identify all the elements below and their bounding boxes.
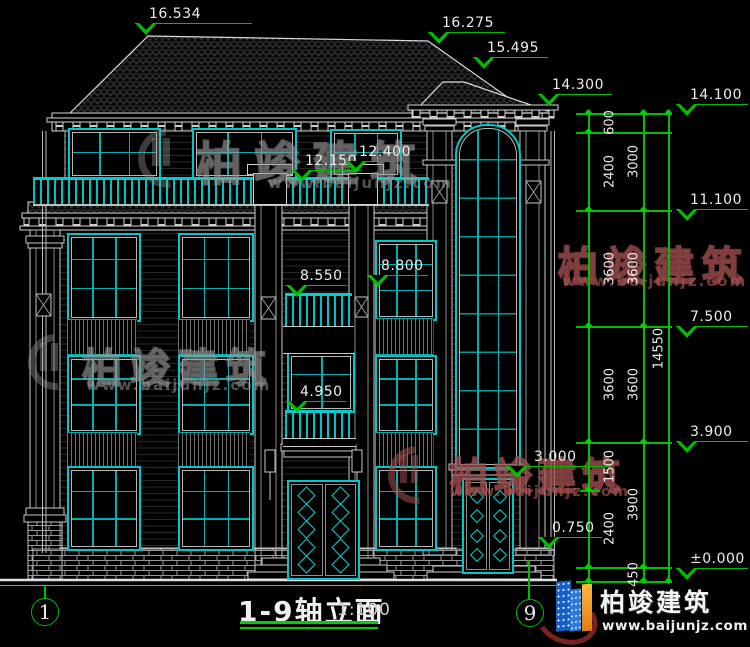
balcony2-slab [283, 438, 356, 447]
dim-2400: 2400 [603, 501, 618, 557]
watermark-url: www.baijunjz.com [562, 272, 747, 290]
elev-3.900: 3.900 [676, 424, 748, 442]
dim-3000: 3000 [627, 134, 642, 190]
dim-3600: 3600 [603, 241, 618, 297]
tower-arched-window [455, 124, 521, 469]
elev-7.500: 7.500 [676, 309, 748, 327]
window-3f-left2 [178, 233, 254, 322]
dim-2400: 2400 [603, 144, 618, 200]
elev-0.750: 0.750 [538, 520, 602, 538]
logo-building-icon [582, 584, 592, 632]
dim-3900: 3900 [627, 477, 642, 533]
balcony3-slab [283, 326, 354, 354]
elev-16.275: 16.275 [428, 15, 505, 33]
axis-bubble-1: 1 [31, 598, 59, 626]
dim-3600: 3600 [627, 241, 642, 297]
window-2f-right [375, 355, 437, 435]
dim-3600: 3600 [603, 357, 618, 413]
dim-chain-line-b [643, 111, 645, 582]
elev-4.950: 4.950 [286, 384, 346, 402]
elev-15.495: 15.495 [473, 40, 548, 58]
dim-chain-line-a [588, 111, 590, 582]
watermark-logo-icon [40, 343, 58, 371]
elev-14.300: 14.300 [538, 77, 612, 95]
logo-building-icon [556, 580, 571, 632]
spandrel-3f-right [375, 318, 433, 355]
elev-14.100: 14.100 [676, 87, 748, 105]
logo-building-icon [570, 588, 581, 631]
window-1f-left2 [178, 466, 254, 551]
cad-elevation-sheet: 16.534 16.275 15.495 14.300 14.100 12.15… [0, 0, 750, 647]
elev-8.800: 8.800 [367, 258, 428, 276]
elev-11.100: 11.100 [676, 192, 748, 210]
spandrel-2f-left1 [67, 432, 137, 467]
axis-leader-1 [44, 585, 46, 598]
brand-url: www.baijunjz.com [602, 618, 748, 634]
elev-3.000: 3.000 [506, 449, 610, 467]
dim-14550-total: 14550 [652, 321, 667, 377]
window-3f-left1 [67, 233, 141, 322]
elev-12.400: 12.400 [345, 144, 408, 162]
watermark-logo-icon [400, 455, 418, 483]
drawing-scale: 1:100 [337, 600, 391, 620]
dim-1500: 1500 [603, 439, 618, 495]
ground-line [0, 580, 557, 586]
watermark-url: www.baijunjz.com [86, 376, 271, 394]
window-3f-right [375, 240, 437, 321]
left-pilaster [24, 230, 66, 579]
watermark-url: www.baijunjz.com [268, 174, 453, 192]
axis-leader-9 [528, 560, 530, 599]
elev-0.000: ±0.000 [676, 551, 748, 569]
elev-8.550: 8.550 [286, 268, 346, 286]
spandrel-2f-left2 [178, 432, 250, 467]
dim-chain-line-total [668, 111, 670, 582]
window-1f-left1 [67, 466, 141, 551]
dim-3600: 3600 [627, 357, 642, 413]
door-leaf-right [325, 484, 357, 576]
title-underline [240, 621, 378, 624]
watermark-logo-icon [152, 138, 170, 166]
dim-600: 600 [603, 95, 618, 151]
door-leaf-left [291, 484, 323, 576]
title-underline [240, 627, 378, 629]
brand-name: 柏竣建筑 [600, 583, 712, 619]
entry-double-door [287, 480, 360, 580]
elev-16.534: 16.534 [135, 6, 252, 24]
